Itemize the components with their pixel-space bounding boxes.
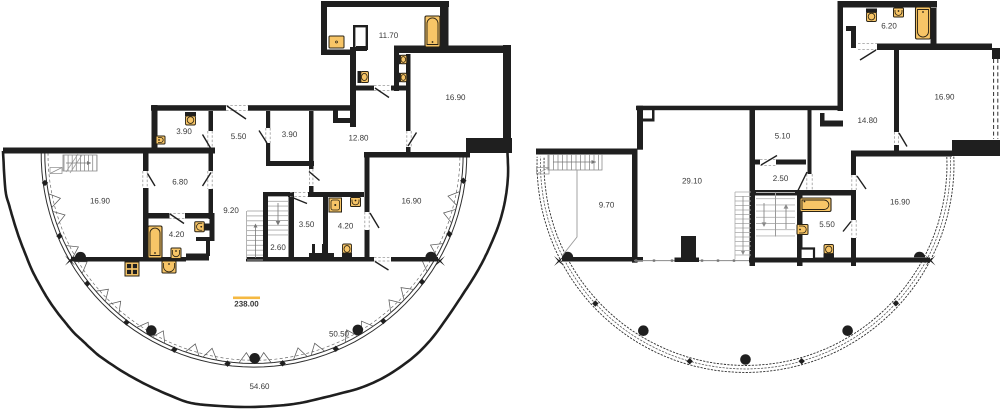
svg-text:3.90: 3.90: [176, 127, 192, 136]
svg-text:14.80: 14.80: [857, 116, 878, 125]
svg-text:4.20: 4.20: [338, 222, 354, 231]
svg-text:5.10: 5.10: [775, 132, 791, 141]
svg-text:50.50: 50.50: [329, 330, 350, 339]
svg-text:54.60: 54.60: [249, 382, 270, 391]
svg-text:3.50: 3.50: [299, 220, 315, 229]
svg-text:16.90: 16.90: [445, 93, 466, 102]
svg-text:5.50: 5.50: [231, 132, 247, 141]
svg-text:16.90: 16.90: [890, 198, 911, 207]
svg-text:9.70: 9.70: [599, 201, 615, 210]
svg-text:12.80: 12.80: [348, 134, 369, 143]
svg-text:2.60: 2.60: [270, 243, 286, 252]
svg-text:2.50: 2.50: [773, 174, 789, 183]
svg-text:16.90: 16.90: [934, 93, 955, 102]
svg-text:3.90: 3.90: [282, 130, 298, 139]
svg-text:4.20: 4.20: [169, 230, 185, 239]
svg-text:16.90: 16.90: [401, 197, 422, 206]
svg-text:238.00: 238.00: [234, 300, 259, 309]
svg-text:11.70: 11.70: [379, 31, 399, 40]
svg-text:6.20: 6.20: [881, 22, 897, 31]
svg-text:5.50: 5.50: [819, 220, 835, 229]
svg-text:29.10: 29.10: [682, 177, 703, 186]
svg-text:9.20: 9.20: [223, 206, 239, 215]
svg-text:16.90: 16.90: [90, 197, 111, 206]
svg-text:6.80: 6.80: [172, 178, 188, 187]
